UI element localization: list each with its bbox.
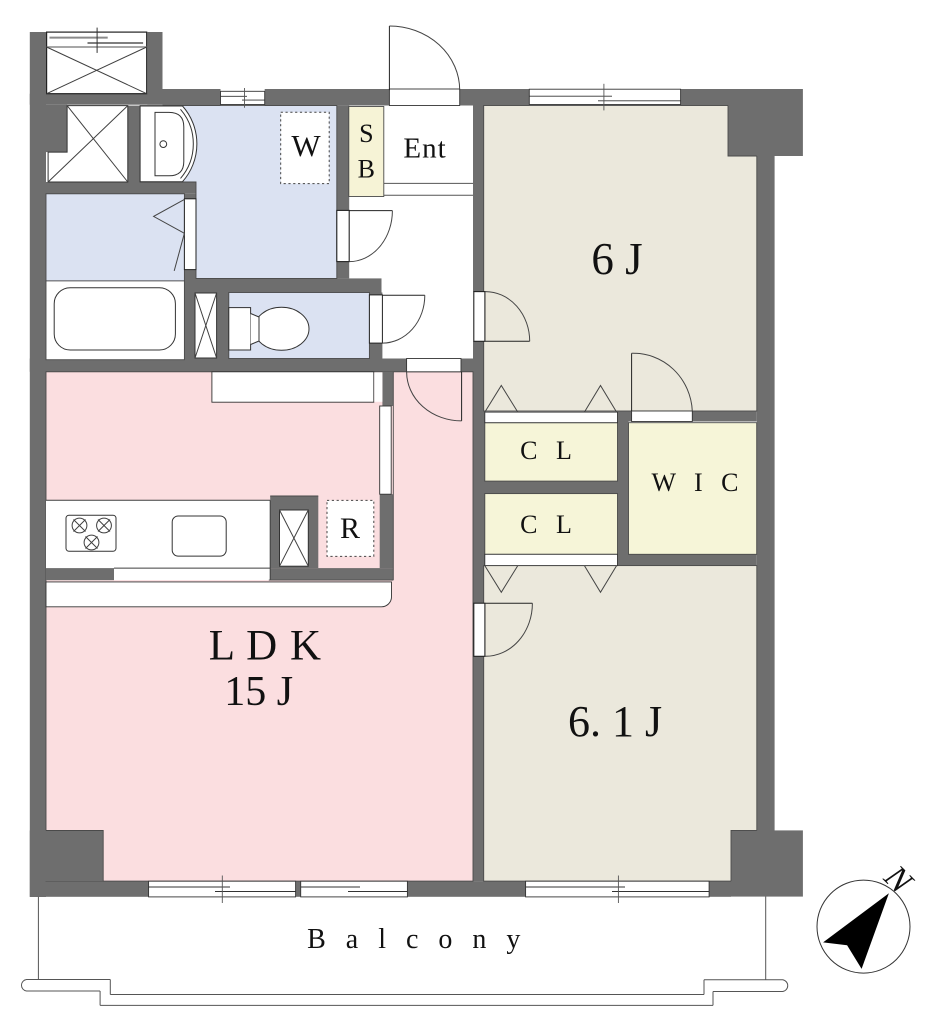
svg-text:S: S (359, 119, 373, 148)
svg-text:B a l c o n y: B a l c o n y (307, 924, 527, 955)
svg-text:C L: C L (520, 436, 578, 465)
svg-text:W: W (291, 128, 321, 163)
svg-text:W I C: W I C (651, 468, 744, 497)
svg-text:6. 1 J: 6. 1 J (568, 697, 662, 746)
svg-text:R: R (340, 512, 360, 545)
svg-text:L D K: L D K (209, 623, 322, 670)
svg-text:C L: C L (520, 510, 578, 539)
svg-text:B: B (358, 155, 375, 184)
svg-text:6 J: 6 J (591, 234, 642, 284)
svg-text:15 J: 15 J (224, 669, 293, 715)
svg-text:Ent: Ent (403, 133, 446, 165)
